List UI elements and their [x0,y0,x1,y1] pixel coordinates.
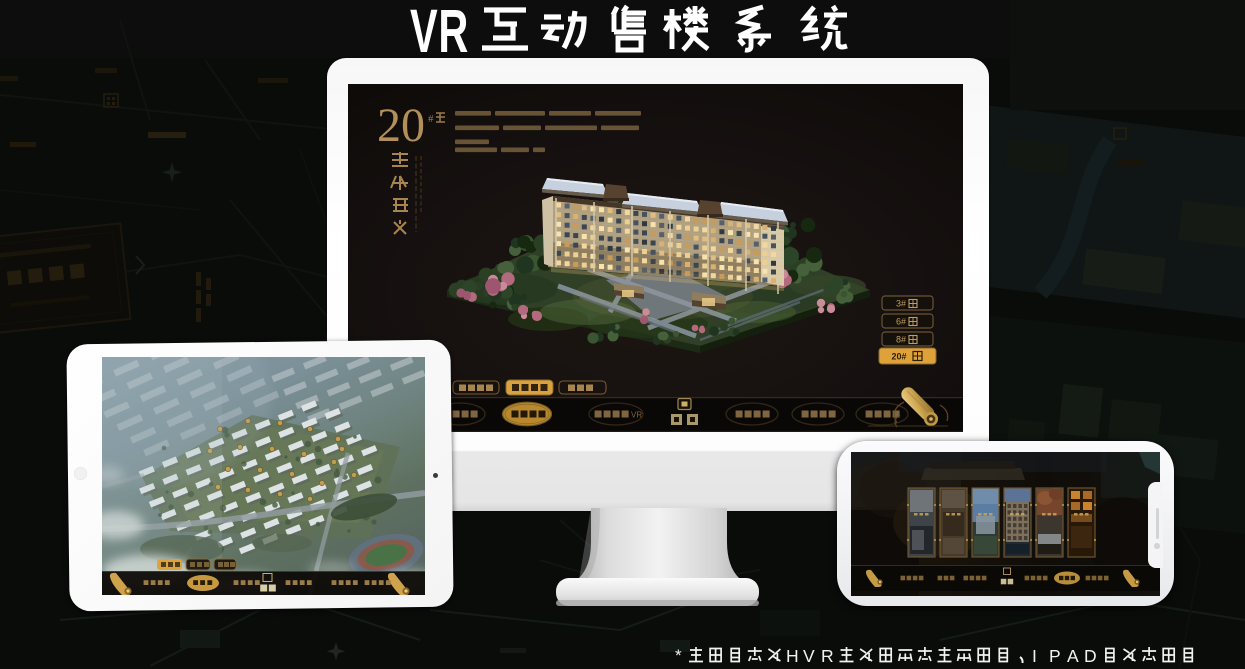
svg-text:3#: 3# [896,299,906,309]
svg-text:H: H [786,646,799,666]
svg-text:20#: 20# [891,352,906,362]
svg-text:#: # [428,113,434,125]
svg-text:VR: VR [631,411,642,420]
svg-text:6#: 6# [896,317,906,327]
svg-text:A: A [1067,646,1079,666]
svg-text:VR: VR [410,0,469,60]
svg-text:D: D [1084,646,1097,666]
svg-text:R: R [821,646,834,666]
svg-text:20: 20 [377,99,425,152]
svg-text:8#: 8# [896,335,906,345]
svg-text:P: P [1049,646,1061,666]
svg-text:V: V [803,646,815,666]
svg-text:*: * [675,646,682,665]
svg-text:I: I [1032,646,1037,666]
